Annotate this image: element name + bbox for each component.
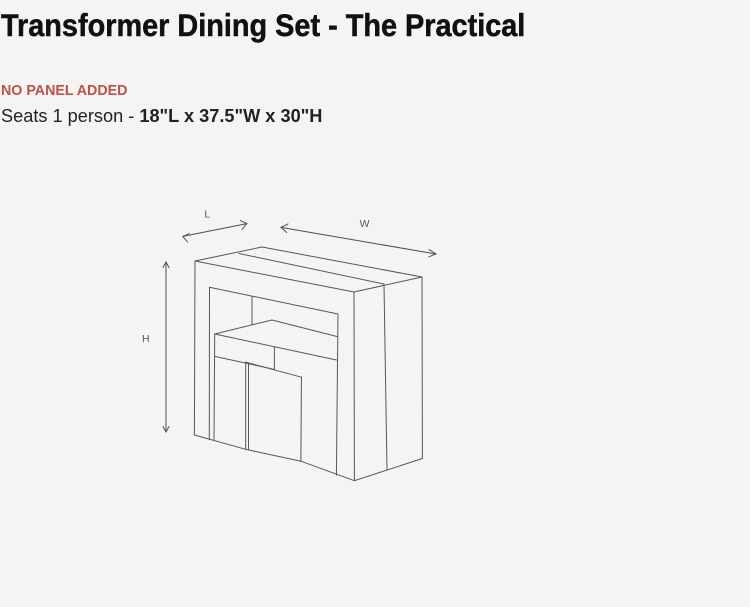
svg-text:W: W (360, 218, 370, 230)
svg-text:H: H (142, 333, 150, 345)
svg-text:L: L (204, 208, 210, 220)
